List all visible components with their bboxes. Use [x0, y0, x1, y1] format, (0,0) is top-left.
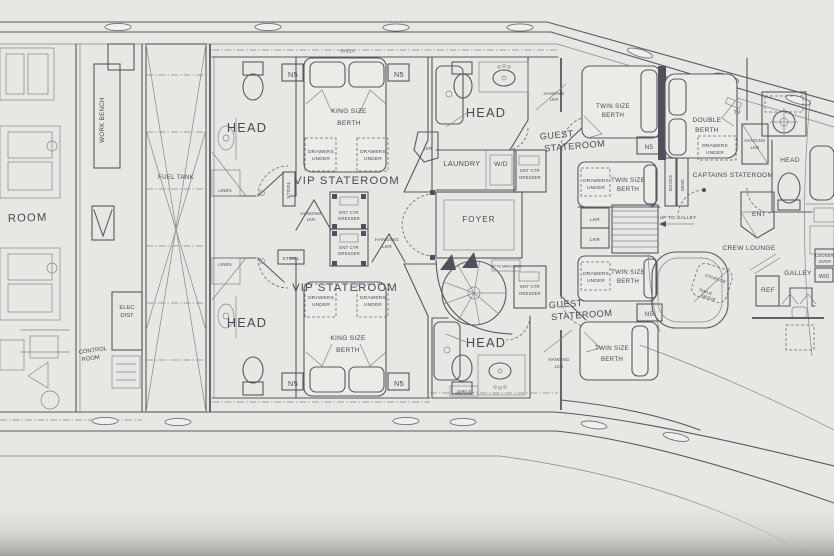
- lkr-label: LKR: [590, 217, 600, 223]
- king-berth-label-line1: KING SIZE: [331, 108, 367, 115]
- books-label: BOOKS: [668, 175, 673, 191]
- stool-label: STOOL: [282, 256, 299, 262]
- n5-label: N5: [288, 70, 298, 79]
- desk-label: DESK: [680, 179, 685, 191]
- under-label: UNDER: [364, 302, 382, 308]
- tv-label: TV: [734, 110, 741, 116]
- under-label: UNDER: [706, 150, 724, 156]
- porthole-icon: [165, 418, 191, 425]
- head-lower-label: HEAD: [227, 315, 267, 330]
- lkr-label: LKR: [590, 237, 600, 243]
- twin-berth-label-line2: BERTH: [617, 278, 639, 285]
- porthole-icon: [92, 417, 118, 424]
- double-berth-label-line2: BERTH: [695, 127, 719, 134]
- dresser-label: DRESSER: [338, 251, 360, 256]
- hanging-label: HANGING: [544, 91, 565, 96]
- work-bench-label: WORK BENCH: [99, 97, 106, 143]
- galley-label: GALLEY: [784, 270, 812, 277]
- stool-label: STOOL: [286, 181, 292, 198]
- hanging-label: HANGING: [301, 211, 322, 216]
- drawers-label: DRAWERS: [702, 143, 728, 149]
- ent-ctr-label: ENT CTR: [339, 245, 358, 250]
- shelf-label-top: SHELF: [341, 49, 356, 54]
- ref-label: REF: [761, 287, 775, 294]
- page-edge-shadow: [0, 498, 834, 556]
- twin-berth-label-line1: TWIN SIZE: [611, 177, 645, 184]
- porthole-icon: [393, 417, 419, 424]
- porthole-icon: [383, 24, 409, 31]
- drawers-label: DRAWERS: [308, 295, 334, 301]
- n5-label: N5: [394, 379, 404, 388]
- yacht-deck-plan: ROOM WORK BENCH ELEC DIST CONTROL ROOM F…: [0, 0, 834, 556]
- over-label: OVER: [819, 259, 832, 264]
- crew-lounge-label: CREW LOUNGE: [722, 245, 775, 252]
- lkr-label: LKR: [424, 146, 433, 151]
- drawers-label: DRAWERS: [360, 149, 386, 155]
- under-label: UNDER: [587, 185, 605, 191]
- elec-dist-label-line1: ELEC: [119, 305, 134, 311]
- under-label: UNDER: [312, 156, 330, 162]
- n5-label: N5: [645, 311, 654, 318]
- shelf-label-bottom: SHELF: [457, 389, 472, 394]
- fuel-tank-label: FUEL TANK: [158, 174, 195, 181]
- under-label: UNDER: [312, 302, 330, 308]
- double-berth-label-line1: DOUBLE: [693, 117, 722, 124]
- hanging-label: HANGING: [549, 357, 570, 362]
- captains-stateroom-label: CAPTAINS STATEROOM: [693, 172, 774, 179]
- wd-label: W/D: [494, 161, 508, 168]
- twin-berth-label-line2: BERTH: [602, 112, 624, 119]
- twin-berth-label-line1: TWIN SIZE: [596, 103, 630, 110]
- dresser-label: DRESSER: [519, 291, 541, 296]
- lkr-label: LKR: [555, 364, 564, 369]
- head-center-lower-label: HEAD: [466, 335, 506, 350]
- under-label: UNDER: [587, 278, 605, 284]
- head-captain-label: HEAD: [780, 157, 800, 164]
- drawers-label: DRAWERS: [360, 295, 386, 301]
- wd-label: W/D: [819, 274, 830, 280]
- twin-berth-label-line2: BERTH: [601, 356, 623, 363]
- twin-bed: [582, 66, 660, 138]
- king-berth-label-line1: KING SIZE: [330, 335, 366, 342]
- twin-berth-label-line1: TWIN SIZE: [595, 345, 629, 352]
- drawers-label: DRAWERS: [583, 178, 609, 184]
- n5-label: N5: [394, 70, 404, 79]
- ent-ctr-label: ENT CTR: [520, 168, 539, 173]
- laundry-label: LAUNDRY: [443, 159, 480, 168]
- porthole-icon: [450, 418, 476, 425]
- ent-ctr-label: ENT CTR: [520, 284, 539, 289]
- hanging-label: HANGING: [375, 237, 399, 243]
- ent-ctr-label: ENT CTR: [339, 210, 358, 215]
- king-berth-label-line2: BERTH: [336, 347, 360, 354]
- porthole-icon: [507, 24, 533, 31]
- vip-upper-label: VIP STATEROOM: [294, 175, 400, 187]
- lkr-label: LKR: [382, 244, 392, 250]
- linen-label: LINEN: [218, 188, 231, 193]
- vip-lower-label: VIP STATEROOM: [292, 282, 398, 294]
- lkr-label: LKR: [550, 97, 559, 102]
- twin-berth-label-line2: BERTH: [617, 186, 639, 193]
- head-center-upper-label: HEAD: [466, 105, 506, 120]
- lockers-label: LOCKERS: [815, 253, 834, 258]
- linen-label: LINEN: [218, 262, 231, 267]
- under-label: UNDER: [364, 156, 382, 162]
- lkr-label: LKR: [307, 217, 316, 222]
- lkr-label: LKR: [751, 145, 760, 150]
- dresser-label: DRESSER: [519, 175, 541, 180]
- twin-berth-label-line1: TWIN SIZE: [611, 269, 645, 276]
- porthole-icon: [105, 23, 131, 30]
- yacht-deck-plan-page: ROOM WORK BENCH ELEC DIST CONTROL ROOM F…: [0, 0, 834, 556]
- engine-room-label: ROOM: [8, 212, 48, 225]
- porthole-icon: [255, 23, 281, 30]
- drawers-label: DRAWERS: [583, 271, 609, 277]
- drawers-label: DRAWERS: [308, 149, 334, 155]
- n5-label: N5: [288, 379, 298, 388]
- dresser-label: DRESSER: [338, 216, 360, 221]
- king-berth-label-line2: BERTH: [337, 120, 361, 127]
- hanging-label: HANGING: [745, 138, 766, 143]
- head-upper-label: HEAD: [227, 120, 267, 135]
- elec-dist-label-line2: DIST: [120, 313, 134, 319]
- foyer-label: FOYER: [462, 215, 496, 224]
- n5-label: N5: [645, 144, 654, 151]
